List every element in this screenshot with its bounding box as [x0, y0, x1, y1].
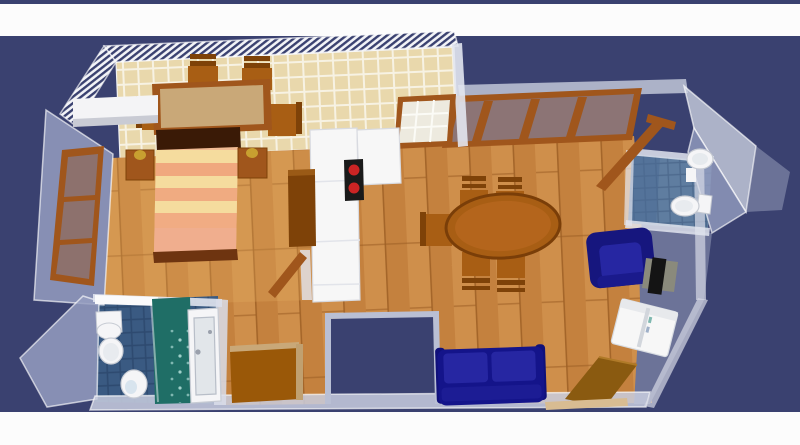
- bed-stripes: [150, 150, 242, 254]
- wardrobe-body: [288, 175, 316, 247]
- sink-pedestal: [686, 168, 696, 182]
- nightstand-left[interactable]: [126, 150, 154, 180]
- sofa-cushion: [491, 350, 536, 382]
- tub-handle: [208, 330, 212, 334]
- bed-group[interactable]: [150, 127, 242, 263]
- window-glass: [399, 100, 450, 143]
- window-pane: [64, 154, 98, 197]
- 3d-render-canvas[interactable]: [0, 0, 800, 445]
- window-pane: [60, 200, 95, 240]
- wall-shelf[interactable]: [73, 95, 158, 127]
- wall-sink[interactable]: [96, 311, 122, 339]
- toilet[interactable]: [99, 338, 123, 364]
- bidet[interactable]: [121, 370, 147, 398]
- tub-basin: [194, 317, 216, 395]
- toilet-bowl: [675, 200, 693, 212]
- ribbon-window: [442, 88, 642, 148]
- wardrobe[interactable]: [288, 169, 316, 247]
- nightstand-right[interactable]: [238, 148, 267, 178]
- cabinet-body: [230, 348, 301, 403]
- hall-cabinet[interactable]: [230, 342, 303, 403]
- table-lamp: [134, 150, 146, 160]
- bathtub[interactable]: [188, 308, 221, 403]
- dining-table[interactable]: [152, 79, 272, 135]
- cooktop[interactable]: [344, 159, 364, 201]
- burner: [349, 183, 360, 194]
- counter-top[interactable]: [357, 128, 401, 185]
- bidet-basin: [125, 380, 137, 394]
- top-white-band: [0, 4, 800, 36]
- window-pane: [56, 243, 92, 279]
- table-lamp: [246, 148, 258, 158]
- sofa-cushion: [443, 352, 488, 384]
- bottom-white-band: [0, 412, 800, 445]
- grid-pane-window: [394, 94, 456, 149]
- floorplan-3d-viewport[interactable]: [0, 0, 800, 445]
- toilet-bowl: [103, 343, 119, 361]
- chair[interactable]: [268, 102, 302, 136]
- sofa-navy[interactable]: [435, 344, 547, 406]
- cabinet-side: [296, 344, 303, 400]
- sink-basin: [692, 153, 708, 165]
- wc-toilet[interactable]: [671, 194, 712, 216]
- tub-faucet: [195, 349, 200, 354]
- burner: [349, 165, 360, 176]
- fridge-cabinet-column[interactable]: [310, 128, 360, 302]
- notch-left-edge: [325, 317, 331, 404]
